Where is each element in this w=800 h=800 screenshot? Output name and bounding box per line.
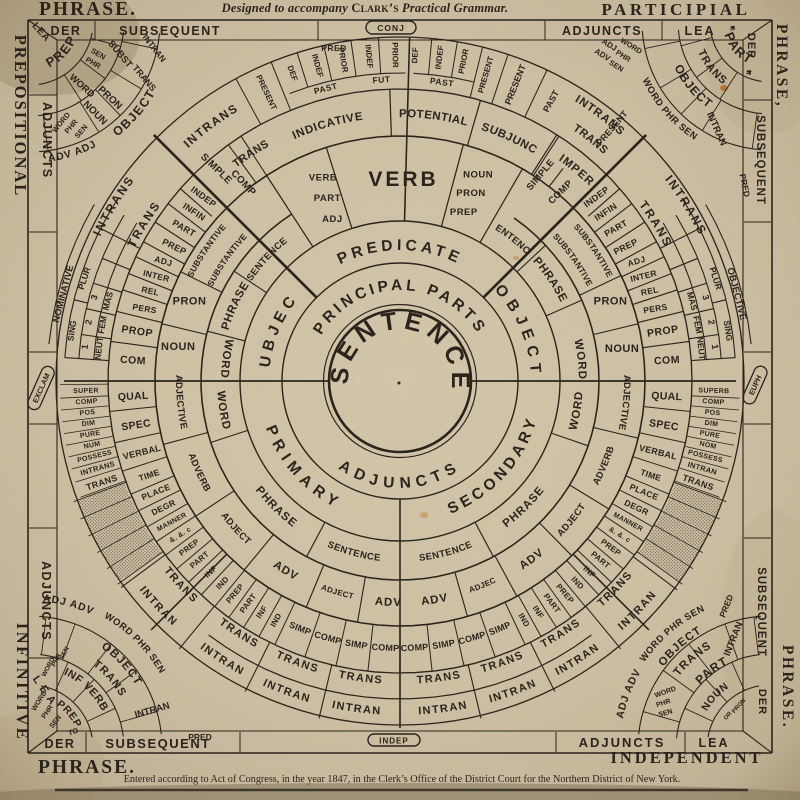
svg-text:PRED: PRED — [188, 732, 212, 742]
svg-text:ADV: ADV — [374, 596, 402, 609]
svg-text:CONJ: CONJ — [377, 23, 405, 33]
svg-text:COMP: COMP — [371, 642, 399, 654]
svg-text:PHRASE,: PHRASE, — [773, 24, 790, 108]
svg-text:DER: DER — [756, 689, 768, 715]
svg-text:NOUN: NOUN — [463, 170, 493, 181]
svg-text:COMP: COMP — [702, 398, 725, 406]
svg-text:DEF: DEF — [410, 47, 420, 64]
svg-text:QUAL: QUAL — [117, 390, 149, 404]
svg-text:LEA: LEA — [699, 736, 730, 750]
svg-text:COMP: COMP — [75, 398, 98, 406]
svg-text:PHRASE.: PHRASE. — [39, 0, 137, 20]
svg-text:SUPER: SUPER — [73, 387, 99, 395]
svg-text:VERB: VERB — [368, 168, 438, 191]
svg-text:COMP: COMP — [400, 642, 428, 654]
svg-text:Entered according to Act of Co: Entered according to Act of Congress, in… — [124, 774, 681, 785]
svg-text:PHRASE.: PHRASE. — [779, 645, 796, 729]
svg-text:PRIOR: PRIOR — [390, 42, 400, 68]
svg-text:ADJUNCTS: ADJUNCTS — [562, 24, 642, 38]
svg-text:DER: DER — [45, 737, 76, 751]
svg-text:PRON: PRON — [456, 188, 485, 199]
svg-text:SUBSEQUENT: SUBSEQUENT — [754, 115, 766, 205]
svg-text:PREP: PREP — [450, 207, 478, 218]
svg-text:ADJ: ADJ — [322, 214, 343, 225]
svg-text:QUAL: QUAL — [651, 390, 683, 404]
svg-text:1: 1 — [710, 344, 720, 350]
svg-text:PHRASE.: PHRASE. — [38, 757, 136, 778]
svg-text:INFINITIVE: INFINITIVE — [13, 623, 32, 742]
svg-text:COM: COM — [654, 354, 681, 368]
svg-text:PRON: PRON — [594, 295, 628, 307]
svg-text:PREPOSITIONAL: PREPOSITIONAL — [11, 35, 30, 198]
svg-text:1: 1 — [80, 344, 90, 350]
svg-text:INDEPENDENT: INDEPENDENT — [610, 748, 763, 767]
svg-text:PART: PART — [314, 193, 341, 204]
svg-text:NOUN: NOUN — [161, 341, 195, 353]
svg-text:PRON: PRON — [173, 295, 207, 307]
svg-text:INDEP: INDEP — [379, 737, 408, 746]
svg-text:SUPERB: SUPERB — [698, 387, 729, 395]
svg-text:COM: COM — [120, 354, 147, 368]
svg-text:FUT: FUT — [372, 74, 391, 85]
svg-text:VERB: VERB — [309, 172, 337, 183]
svg-text:PARTICIPIAL: PARTICIPIAL — [601, 0, 750, 19]
svg-text:ADJUNCTS: ADJUNCTS — [579, 735, 666, 750]
svg-text:NOUN: NOUN — [605, 343, 639, 355]
svg-text:SUBSEQUENT: SUBSEQUENT — [119, 24, 221, 38]
